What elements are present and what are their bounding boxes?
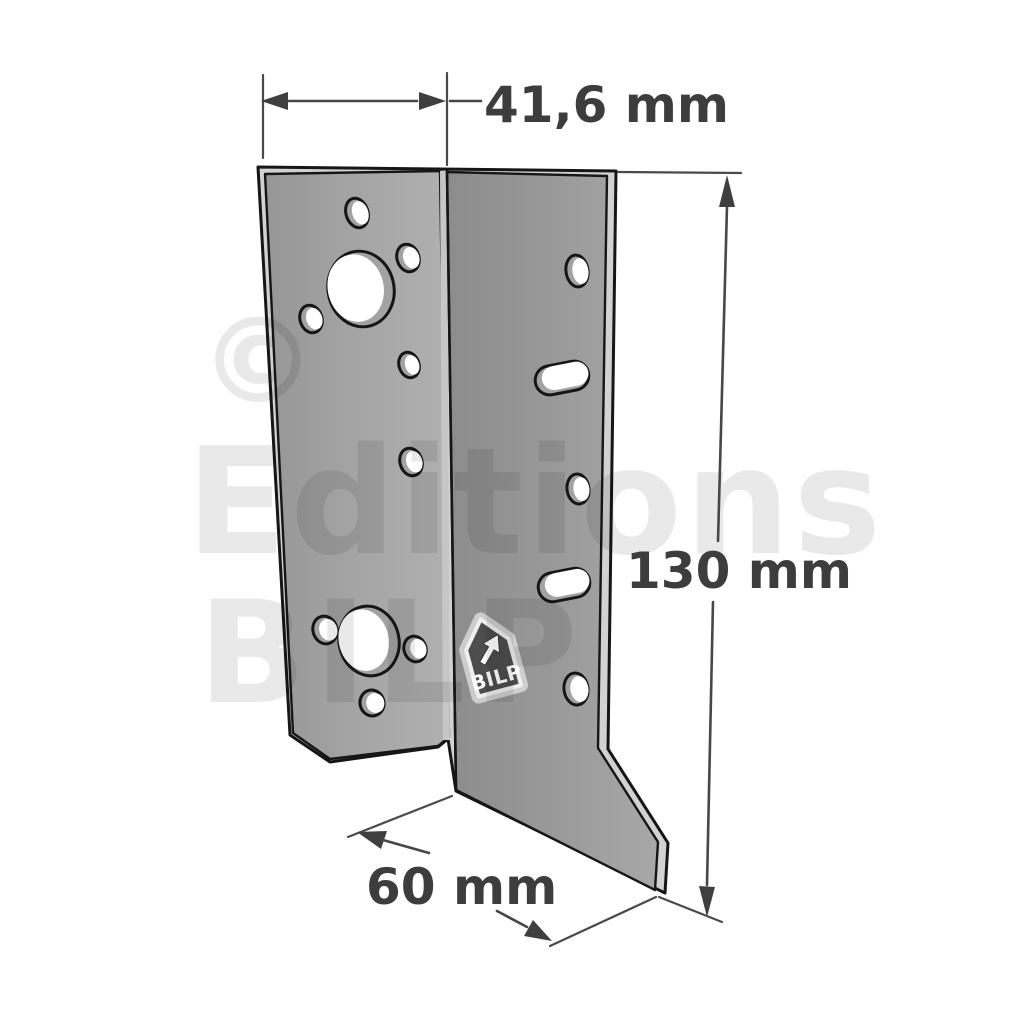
dimension-top-label: 41,6 mm — [484, 76, 729, 134]
watermark-copyright-icon: © — [199, 292, 317, 430]
dimension-right: 130 mm — [618, 172, 852, 922]
dimension-right-label: 130 mm — [626, 542, 852, 600]
bracket-illustration: BILP © Editions BILP 41,6 mm 130 mm 60 m… — [0, 0, 1024, 1024]
dimension-bottom-label: 60 mm — [366, 858, 557, 916]
watermark-line2: BILP — [198, 571, 586, 736]
dimension-top: 41,6 mm — [261, 73, 729, 165]
bracket-diagram-page: BILP © Editions BILP 41,6 mm 130 mm 60 m… — [0, 0, 1024, 1024]
